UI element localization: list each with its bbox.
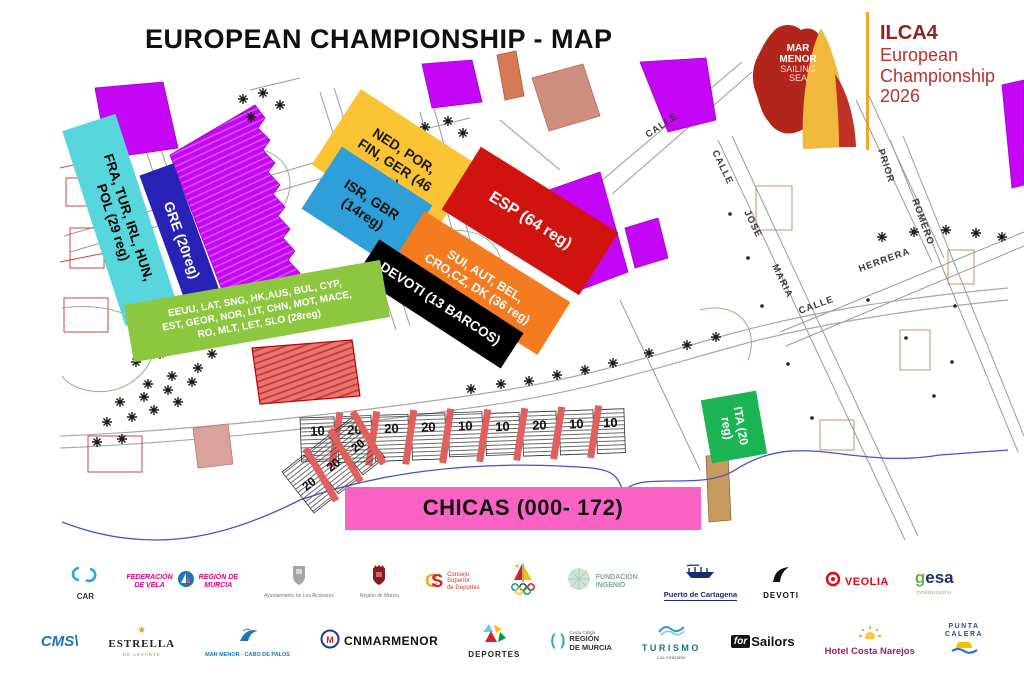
street-label: JOSE bbox=[741, 208, 764, 239]
sponsor-cnmarmenor: M CNMARMENOR bbox=[320, 629, 438, 654]
sponsor-puerto-cartagena: Puerto de Cartagena bbox=[664, 563, 737, 601]
sponsor-label: MAR MENOR - CABO DE PALOS bbox=[205, 652, 290, 658]
cms-wordmark: CMS\ bbox=[41, 633, 79, 650]
sponsor-label: Puerto de Cartagena bbox=[664, 590, 737, 601]
csd-monogram-icon: CS bbox=[425, 571, 443, 592]
sponsor-forsailors: for Sailors bbox=[731, 634, 795, 649]
rack-count: 10 bbox=[310, 423, 325, 438]
street-label: CALLE bbox=[797, 294, 835, 317]
sponsor-gesa: g esa CORREDURÍA bbox=[915, 568, 954, 595]
sponsor-label: REGIÓN DE MURCIA bbox=[569, 635, 612, 652]
sponsor-row-1: CAR FEDERACIÓN DE VELA REGIÓN DE MURCIA … bbox=[0, 562, 1024, 601]
club-badge-icon: M bbox=[320, 629, 340, 654]
sponsor-cms: CMS\ bbox=[41, 633, 79, 650]
sponsor-sublabel: DE LEVANTE bbox=[123, 652, 161, 657]
sun-icon bbox=[857, 625, 883, 644]
rack-count: 10 bbox=[603, 415, 618, 430]
forsailors-wordmark: for bbox=[731, 635, 750, 648]
double-wave-icon bbox=[657, 622, 685, 641]
sponsor-label: CNMARMENOR bbox=[344, 634, 438, 648]
sponsor-estrella-levante: ★ ESTRELLA DE LEVANTE bbox=[108, 626, 175, 657]
zone-chicas: CHICAS (000- 172) bbox=[345, 487, 701, 530]
sponsor-row-2: CMS\ ★ ESTRELLA DE LEVANTE MAR MENOR - C… bbox=[0, 622, 1024, 660]
street-label: HERRERA bbox=[857, 246, 911, 275]
sponsor-hotel-costa-narejos: Hotel Costa Narejos bbox=[825, 625, 915, 657]
gesa-wordmark: g esa bbox=[915, 568, 954, 588]
car-swirl-icon bbox=[70, 563, 100, 590]
street-label: CALLE bbox=[709, 148, 735, 186]
sponsor-label: TURISMO bbox=[642, 643, 701, 653]
sponsor-sublabel: CORREDURÍA bbox=[917, 590, 952, 595]
galley-ship-icon bbox=[683, 563, 717, 588]
sail-circle-icon bbox=[177, 570, 195, 593]
olympic-sail-icon bbox=[506, 562, 540, 601]
sponsor-label: FEDERACIÓN DE VELA bbox=[126, 574, 172, 589]
devoti-sail-icon bbox=[769, 564, 793, 589]
sponsor-label: Ayuntamiento de Los Alcázares bbox=[264, 593, 334, 599]
sun-wave-icon bbox=[950, 641, 978, 659]
green-sphere-icon bbox=[566, 566, 592, 597]
sponsor-label: Consejo Superior de Deportes bbox=[447, 572, 480, 592]
rack-count: 20 bbox=[532, 417, 547, 432]
sponsor-label: Hotel Costa Narejos bbox=[825, 646, 915, 657]
rack-count: 10 bbox=[458, 418, 473, 433]
sponsor-deportes: DEPORTES bbox=[468, 623, 520, 659]
rack-count: 20 bbox=[421, 419, 436, 434]
sponsor-label: FUNDACIÓN INGENIO bbox=[596, 574, 638, 589]
street-label: PRIOR bbox=[875, 148, 896, 185]
sponsor-label: VEOLIA bbox=[845, 576, 889, 588]
sponsor-label: DEVOTI bbox=[763, 591, 799, 600]
ring-dot-icon bbox=[825, 571, 841, 592]
sponsor-label: REGIÓN DE MURCIA bbox=[199, 574, 238, 589]
sponsor-label: CAR bbox=[77, 592, 94, 601]
sponsor-rfev bbox=[506, 562, 540, 601]
sponsor-label: DEPORTES bbox=[468, 650, 520, 659]
rack-count: 20 bbox=[384, 421, 399, 436]
murcia-crest-icon bbox=[370, 564, 388, 591]
rack-count: 10 bbox=[495, 419, 510, 434]
zone-ita: ITA (20 reg) bbox=[701, 391, 767, 464]
parcel-dots bbox=[728, 212, 957, 420]
sponsor-csd: CS Consejo Superior de Deportes bbox=[425, 571, 480, 592]
sponsor-ayuntamiento: Ayuntamiento de Los Alcázares bbox=[264, 564, 334, 599]
svg-text:M: M bbox=[326, 635, 334, 645]
sponsor-label: PUNTA CALERA bbox=[945, 623, 983, 639]
sponsor-devoti: DEVOTI bbox=[763, 564, 799, 600]
sponsor-sublabel: Los Alcázares bbox=[657, 655, 685, 660]
sponsor-punta-calera: PUNTA CALERA bbox=[945, 623, 983, 659]
sponsor-turismo-alcazares: TURISMO Los Alcázares bbox=[642, 622, 701, 660]
sponsor-veolia: VEOLIA bbox=[825, 571, 889, 592]
sponsor-label: ESTRELLA bbox=[108, 638, 175, 650]
sponsor-federacion-vela: FEDERACIÓN DE VELA REGIÓN DE MURCIA bbox=[126, 570, 238, 593]
gold-star-icon: ★ bbox=[137, 626, 146, 636]
rack-count: 10 bbox=[569, 416, 584, 431]
sponsor-region-murcia-turismo: ( ) Costa Cálida REGIÓN DE MURCIA bbox=[550, 630, 612, 652]
mosaic-icon bbox=[481, 623, 507, 648]
brackets-icon: ( ) bbox=[550, 632, 565, 650]
sponsor-mar-menor-cabo: MAR MENOR - CABO DE PALOS bbox=[205, 625, 290, 658]
street-label: MARIA bbox=[769, 262, 795, 299]
sponsor-car: CAR bbox=[70, 563, 100, 601]
wave-bird-icon bbox=[235, 625, 261, 650]
sponsor-label: Región de Murcia bbox=[360, 593, 399, 599]
sponsor-region-murcia-crest: Región de Murcia bbox=[360, 564, 399, 599]
sponsor-fundacion-ingenio: FUNDACIÓN INGENIO bbox=[566, 566, 638, 597]
town-crest-icon bbox=[291, 564, 307, 591]
